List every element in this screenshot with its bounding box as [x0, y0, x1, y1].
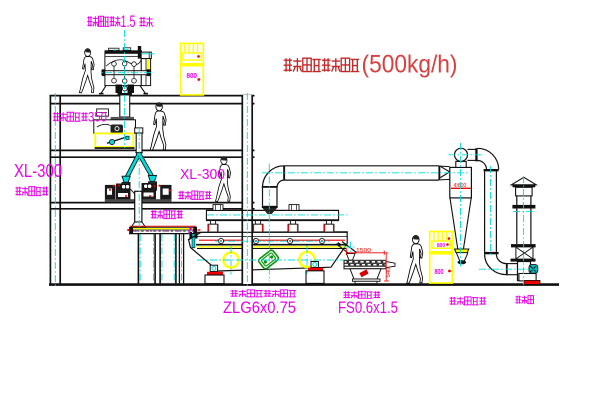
svg-text:800: 800	[435, 267, 444, 276]
svg-text:(500kg/h): (500kg/h)	[362, 51, 458, 79]
svg-text:ZLG6x0.75: ZLG6x0.75	[223, 298, 296, 317]
svg-text:1.5: 1.5	[121, 12, 136, 31]
svg-text:FS0.6x1.5: FS0.6x1.5	[338, 298, 398, 317]
svg-text:XL-300: XL-300	[180, 167, 225, 183]
svg-text:1500: 1500	[356, 248, 371, 254]
svg-text:540: 540	[386, 267, 392, 277]
svg-text:800: 800	[437, 243, 445, 249]
svg-text:350: 350	[88, 109, 107, 125]
svg-text:XL-300: XL-300	[14, 160, 62, 181]
svg-text:800: 800	[187, 73, 198, 80]
